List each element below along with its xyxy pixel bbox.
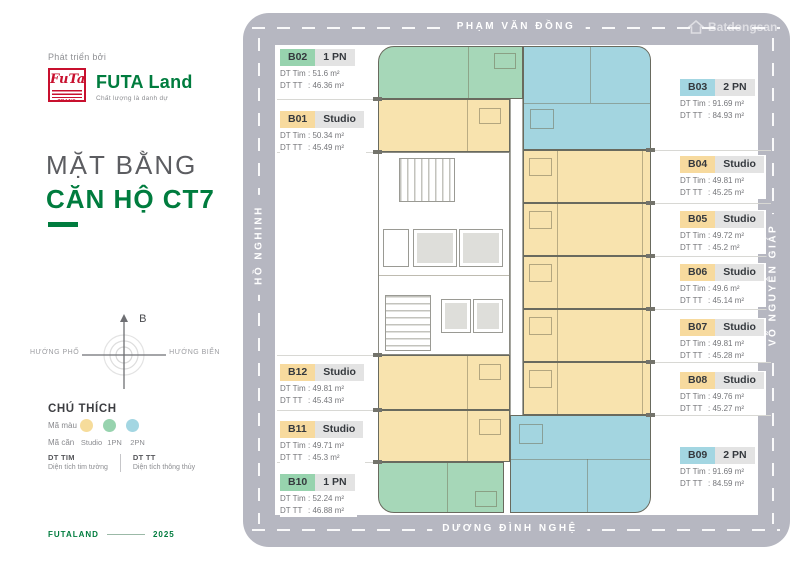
leader-line	[651, 203, 771, 204]
plan-unit-b02	[378, 46, 523, 99]
unit-callout-b12: B12 Studio DT Tim : 49.81 m² DT TT : 45.…	[280, 363, 366, 407]
facade-tick	[373, 150, 382, 154]
leader-line	[651, 309, 771, 310]
compass-east-label: HƯỚNG BIỂN	[169, 349, 220, 356]
dt-tim-row: DT Tim : 49.81 m²	[280, 384, 364, 393]
plan-unit-b01	[378, 99, 510, 152]
footer-year: 2025	[153, 530, 175, 539]
street-name-right: VÕ NGUYÊN GIÁP	[767, 214, 780, 356]
dt-tim-desc: Diện tích tim tường	[48, 464, 108, 471]
plan-unit-b06	[523, 256, 651, 309]
dt-tt-row: DT TT : 84.59 m²	[680, 479, 755, 488]
unit-chips: B10 1 PN	[280, 474, 355, 491]
swatch-2pn	[126, 419, 139, 432]
dt-tt-value: : 46.36 m²	[308, 81, 344, 90]
dt-tt-row: DT TT : 45.25 m²	[680, 188, 764, 197]
unit-type-badge: 1 PN	[315, 474, 354, 491]
plan-core	[378, 152, 510, 355]
facade-tick	[373, 460, 382, 464]
brand-name: FUTA Land	[96, 72, 193, 93]
dt-tim-value: : 49.71 m²	[308, 441, 344, 450]
unit-chips: B04 Studio	[680, 156, 764, 173]
plan-unit-b10	[378, 462, 504, 513]
dt-tim-row: DT Tim : 49.71 m²	[280, 441, 363, 450]
dt-tt-label: DT TT	[280, 143, 308, 152]
dt-tt-label: DT TT	[280, 453, 308, 462]
dt-tt-label: DT TT	[680, 296, 708, 305]
dt-tt-row: DT TT : 46.36 m²	[280, 81, 355, 90]
futa-logo: FuTa PHƯƠNG TRANG FUTA Land Chất lượng l…	[48, 68, 193, 102]
brand-block: FUTA Land Chất lượng là danh dự	[96, 68, 193, 102]
house-icon	[688, 20, 704, 34]
developed-by-label: Phát triển bởi	[48, 52, 106, 62]
leader-line	[651, 256, 771, 257]
dt-tt-value: : 84.93 m²	[708, 111, 744, 120]
dt-tt-label: DT TT	[680, 243, 708, 252]
dt-tim-abbr: DT TIM	[48, 453, 108, 462]
swatch-studio	[80, 419, 93, 432]
compass-west-label: HƯỚNG PHỐ	[30, 349, 79, 356]
dt-tt-desc: Diện tích thông thủy	[133, 464, 195, 471]
watermark: Batdongsan	[688, 20, 777, 34]
dt-tt-value: : 45.2 m²	[708, 243, 740, 252]
facade-tick	[646, 254, 655, 258]
unit-callout-b01: B01 Studio DT Tim : 50.34 m² DT TT : 45.…	[280, 110, 366, 154]
dt-tim-row: DT Tim : 51.6 m²	[280, 69, 355, 78]
unit-id-badge: B02	[280, 49, 315, 66]
dt-tim-label: DT Tim	[280, 441, 308, 450]
unit-callout-b08: B08 Studio DT Tim : 49.76 m² DT TT : 45.…	[680, 371, 766, 415]
unit-type-badge: Studio	[715, 211, 764, 228]
dt-tim-value: : 49.81 m²	[708, 339, 744, 348]
dt-tt-row: DT TT : 45.27 m²	[680, 404, 764, 413]
facade-tick	[646, 413, 655, 417]
unit-type-badge: Studio	[315, 111, 364, 128]
plan-unit-b12	[378, 355, 510, 410]
dt-tt-row: DT TT : 45.2 m²	[680, 243, 764, 252]
street-name-top: PHẠM VĂN ĐỒNG	[447, 20, 586, 33]
dt-tim-label: DT Tim	[280, 69, 308, 78]
dt-tt-label: DT TT	[680, 351, 708, 360]
dt-tim-label: DT Tim	[680, 284, 708, 293]
dt-tim-row: DT Tim : 91.69 m²	[680, 99, 755, 108]
facade-tick	[646, 307, 655, 311]
dt-tt-abbr: DT TT	[133, 453, 195, 462]
facade-tick	[646, 201, 655, 205]
dt-tt-value: : 45.3 m²	[308, 453, 340, 462]
legend-type-2pn: 2PN	[126, 438, 149, 447]
plan-unit-b04	[523, 150, 651, 203]
dt-tt-value: : 46.88 m²	[308, 506, 344, 515]
dt-tim-row: DT Tim : 49.76 m²	[680, 392, 764, 401]
dt-tim-label: DT Tim	[280, 131, 308, 140]
page-title-line2: CĂN HỘ CT7	[46, 182, 215, 216]
compass: HƯỚNG PHỐ B HƯỚNG BIỂN	[30, 312, 220, 392]
emblem-script-text: FuTa	[50, 70, 84, 90]
plan-unit-b03	[523, 46, 651, 150]
dt-tim-label: DT Tim	[680, 99, 708, 108]
unit-chips: B05 Studio	[680, 211, 764, 228]
dt-tt-label: DT TT	[280, 396, 308, 405]
dt-tim-value: : 50.34 m²	[308, 131, 344, 140]
unit-id-badge: B09	[680, 447, 715, 464]
footer: FUTALAND 2025	[48, 530, 175, 539]
compass-rose-icon: B	[82, 313, 166, 391]
dt-tim-label: DT Tim	[680, 467, 708, 476]
dt-tim-label: DT Tim	[280, 494, 308, 503]
unit-chips: B08 Studio	[680, 372, 764, 389]
dt-tim-value: : 91.69 m²	[708, 99, 744, 108]
unit-type-badge: 2 PN	[715, 79, 754, 96]
stairs-lower	[385, 295, 431, 351]
unit-id-badge: B06	[680, 264, 715, 281]
unit-callout-b02: B02 1 PN DT Tim : 51.6 m² DT TT : 46.36 …	[280, 48, 357, 92]
elevator-3	[441, 299, 471, 333]
dt-tim-row: DT Tim : 49.81 m²	[680, 176, 764, 185]
dt-tim-row: DT Tim : 52.24 m²	[280, 494, 355, 503]
dt-tt-row: DT TT : 46.88 m²	[280, 506, 355, 515]
leader-line	[277, 99, 378, 100]
footer-brand: FUTALAND	[48, 530, 99, 539]
unit-callout-b07: B07 Studio DT Tim : 49.81 m² DT TT : 45.…	[680, 318, 766, 362]
unit-id-badge: B05	[680, 211, 715, 228]
unit-chips: B09 2 PN	[680, 447, 755, 464]
leader-line	[277, 355, 378, 356]
dt-tt-value: : 45.43 m²	[308, 396, 344, 405]
facade-tick	[373, 353, 382, 357]
plan-unit-b07	[523, 309, 651, 362]
title-underline	[48, 222, 78, 227]
legend-color-row: Mã màu	[48, 419, 149, 432]
compass-north-label: B	[139, 313, 146, 325]
dt-tim-definition: DT TIM Diện tích tim tường	[48, 453, 108, 471]
dt-tt-value: : 84.59 m²	[708, 479, 744, 488]
unit-id-badge: B04	[680, 156, 715, 173]
unit-callout-b09: B09 2 PN DT Tim : 91.69 m² DT TT : 84.59…	[680, 446, 757, 490]
unit-id-badge: B08	[680, 372, 715, 389]
legend-definitions: DT TIM Diện tích tim tường DT TT Diện tí…	[48, 453, 195, 472]
plan-unit-b09	[510, 415, 651, 513]
page-title: MẶT BẰNG CĂN HỘ CT7	[46, 148, 215, 216]
unit-chips: B01 Studio	[280, 111, 364, 128]
leader-line	[277, 410, 378, 411]
street-name-left: HỒ NGHINH	[253, 195, 266, 295]
dt-tim-row: DT Tim : 49.72 m²	[680, 231, 764, 240]
service-room	[383, 229, 409, 267]
plan-unit-b11	[378, 410, 510, 462]
leader-line	[651, 415, 771, 416]
unit-type-badge: Studio	[715, 156, 764, 173]
stairs-upper	[399, 158, 455, 202]
unit-type-badge: Studio	[315, 421, 364, 438]
dt-tt-value: : 45.14 m²	[708, 296, 744, 305]
dt-tt-label: DT TT	[680, 111, 708, 120]
dt-tt-label: DT TT	[680, 479, 708, 488]
unit-callout-b03: B03 2 PN DT Tim : 91.69 m² DT TT : 84.93…	[680, 78, 757, 122]
dt-tim-label: DT Tim	[280, 384, 308, 393]
dt-tt-label: DT TT	[280, 81, 308, 90]
unit-id-badge: B10	[280, 474, 315, 491]
dt-tim-row: DT Tim : 49.6 m²	[680, 284, 764, 293]
unit-id-badge: B11	[280, 421, 315, 438]
legend-color-row-label: Mã màu	[48, 421, 80, 430]
dt-tim-label: DT Tim	[680, 231, 708, 240]
legend-type-1pn: 1PN	[103, 438, 126, 447]
street-name-bottom: DƯƠNG ĐÌNH NGHỆ	[432, 522, 587, 535]
unit-type-badge: 1 PN	[315, 49, 354, 66]
legend-type-studio: Studio	[80, 438, 103, 447]
unit-chips: B06 Studio	[680, 264, 764, 281]
dt-tt-row: DT TT : 45.49 m²	[280, 143, 364, 152]
dt-tt-value: : 45.49 m²	[308, 143, 344, 152]
dt-tim-value: : 49.81 m²	[308, 384, 344, 393]
swatch-1pn	[103, 419, 116, 432]
elevator-2	[459, 229, 503, 267]
dt-tt-label: DT TT	[280, 506, 308, 515]
legend-heading: CHÚ THÍCH	[48, 403, 117, 415]
dt-tim-row: DT Tim : 50.34 m²	[280, 131, 364, 140]
facade-tick	[373, 97, 382, 101]
legend-type-row: Mã căn Studio 1PN 2PN	[48, 438, 149, 447]
emblem-stripes	[52, 90, 82, 98]
futa-emblem-icon: FuTa PHƯƠNG TRANG	[48, 68, 86, 102]
unit-id-badge: B12	[280, 364, 315, 381]
unit-id-badge: B01	[280, 111, 315, 128]
dt-tt-value: : 45.27 m²	[708, 404, 744, 413]
watermark-text: Batdongsan	[708, 20, 777, 34]
dt-tim-label: DT Tim	[680, 176, 708, 185]
dt-tim-value: : 91.69 m²	[708, 467, 744, 476]
dt-tt-row: DT TT : 45.14 m²	[680, 296, 764, 305]
leader-line	[651, 362, 771, 363]
unit-callout-b04: B04 Studio DT Tim : 49.81 m² DT TT : 45.…	[680, 155, 766, 199]
unit-chips: B03 2 PN	[680, 79, 755, 96]
dt-tt-label: DT TT	[680, 404, 708, 413]
facade-tick	[646, 148, 655, 152]
dt-tt-definition: DT TT Diện tích thông thủy	[133, 453, 195, 471]
dt-tim-row: DT Tim : 49.81 m²	[680, 339, 764, 348]
unit-chips: B02 1 PN	[280, 49, 355, 66]
unit-id-badge: B03	[680, 79, 715, 96]
facade-tick	[646, 360, 655, 364]
dt-tt-row: DT TT : 45.43 m²	[280, 396, 364, 405]
dt-tt-row: DT TT : 45.3 m²	[280, 453, 363, 462]
unit-type-badge: Studio	[315, 364, 364, 381]
unit-type-badge: Studio	[715, 319, 764, 336]
dt-tt-row: DT TT : 84.93 m²	[680, 111, 755, 120]
unit-callout-b10: B10 1 PN DT Tim : 52.24 m² DT TT : 46.88…	[280, 473, 357, 517]
dt-tt-value: : 45.25 m²	[708, 188, 744, 197]
unit-callout-b06: B06 Studio DT Tim : 49.6 m² DT TT : 45.1…	[680, 263, 766, 307]
brand-tagline: Chất lượng là danh dự	[96, 95, 193, 102]
unit-chips: B12 Studio	[280, 364, 364, 381]
dt-tim-label: DT Tim	[680, 392, 708, 401]
facade-tick	[373, 408, 382, 412]
unit-callout-b11: B11 Studio DT Tim : 49.71 m² DT TT : 45.…	[280, 420, 365, 464]
footer-line	[107, 534, 145, 535]
elevator-4	[473, 299, 503, 333]
plan-unit-b08	[523, 362, 651, 415]
dt-tim-value: : 49.6 m²	[708, 284, 740, 293]
dt-tim-value: : 51.6 m²	[308, 69, 340, 78]
unit-type-badge: Studio	[715, 264, 764, 281]
corridor	[510, 99, 523, 415]
dt-tim-value: : 49.76 m²	[708, 392, 744, 401]
dt-tim-value: : 52.24 m²	[308, 494, 344, 503]
legend-type-row-label: Mã căn	[48, 438, 80, 447]
unit-chips: B11 Studio	[280, 421, 363, 438]
unit-chips: B07 Studio	[680, 319, 764, 336]
plan-unit-b05	[523, 203, 651, 256]
dt-tim-value: : 49.81 m²	[708, 176, 744, 185]
unit-id-badge: B07	[680, 319, 715, 336]
dt-tt-row: DT TT : 45.28 m²	[680, 351, 764, 360]
leader-line	[651, 150, 771, 151]
elevator-1	[413, 229, 457, 267]
definition-divider	[120, 454, 121, 472]
dt-tim-row: DT Tim : 91.69 m²	[680, 467, 755, 476]
page-title-line1: MẶT BẰNG	[46, 148, 215, 182]
dt-tt-value: : 45.28 m²	[708, 351, 744, 360]
unit-callout-b05: B05 Studio DT Tim : 49.72 m² DT TT : 45.…	[680, 210, 766, 254]
unit-type-badge: Studio	[715, 372, 764, 389]
unit-type-badge: 2 PN	[715, 447, 754, 464]
dt-tim-label: DT Tim	[680, 339, 708, 348]
dt-tt-label: DT TT	[680, 188, 708, 197]
dt-tim-value: : 49.72 m²	[708, 231, 744, 240]
